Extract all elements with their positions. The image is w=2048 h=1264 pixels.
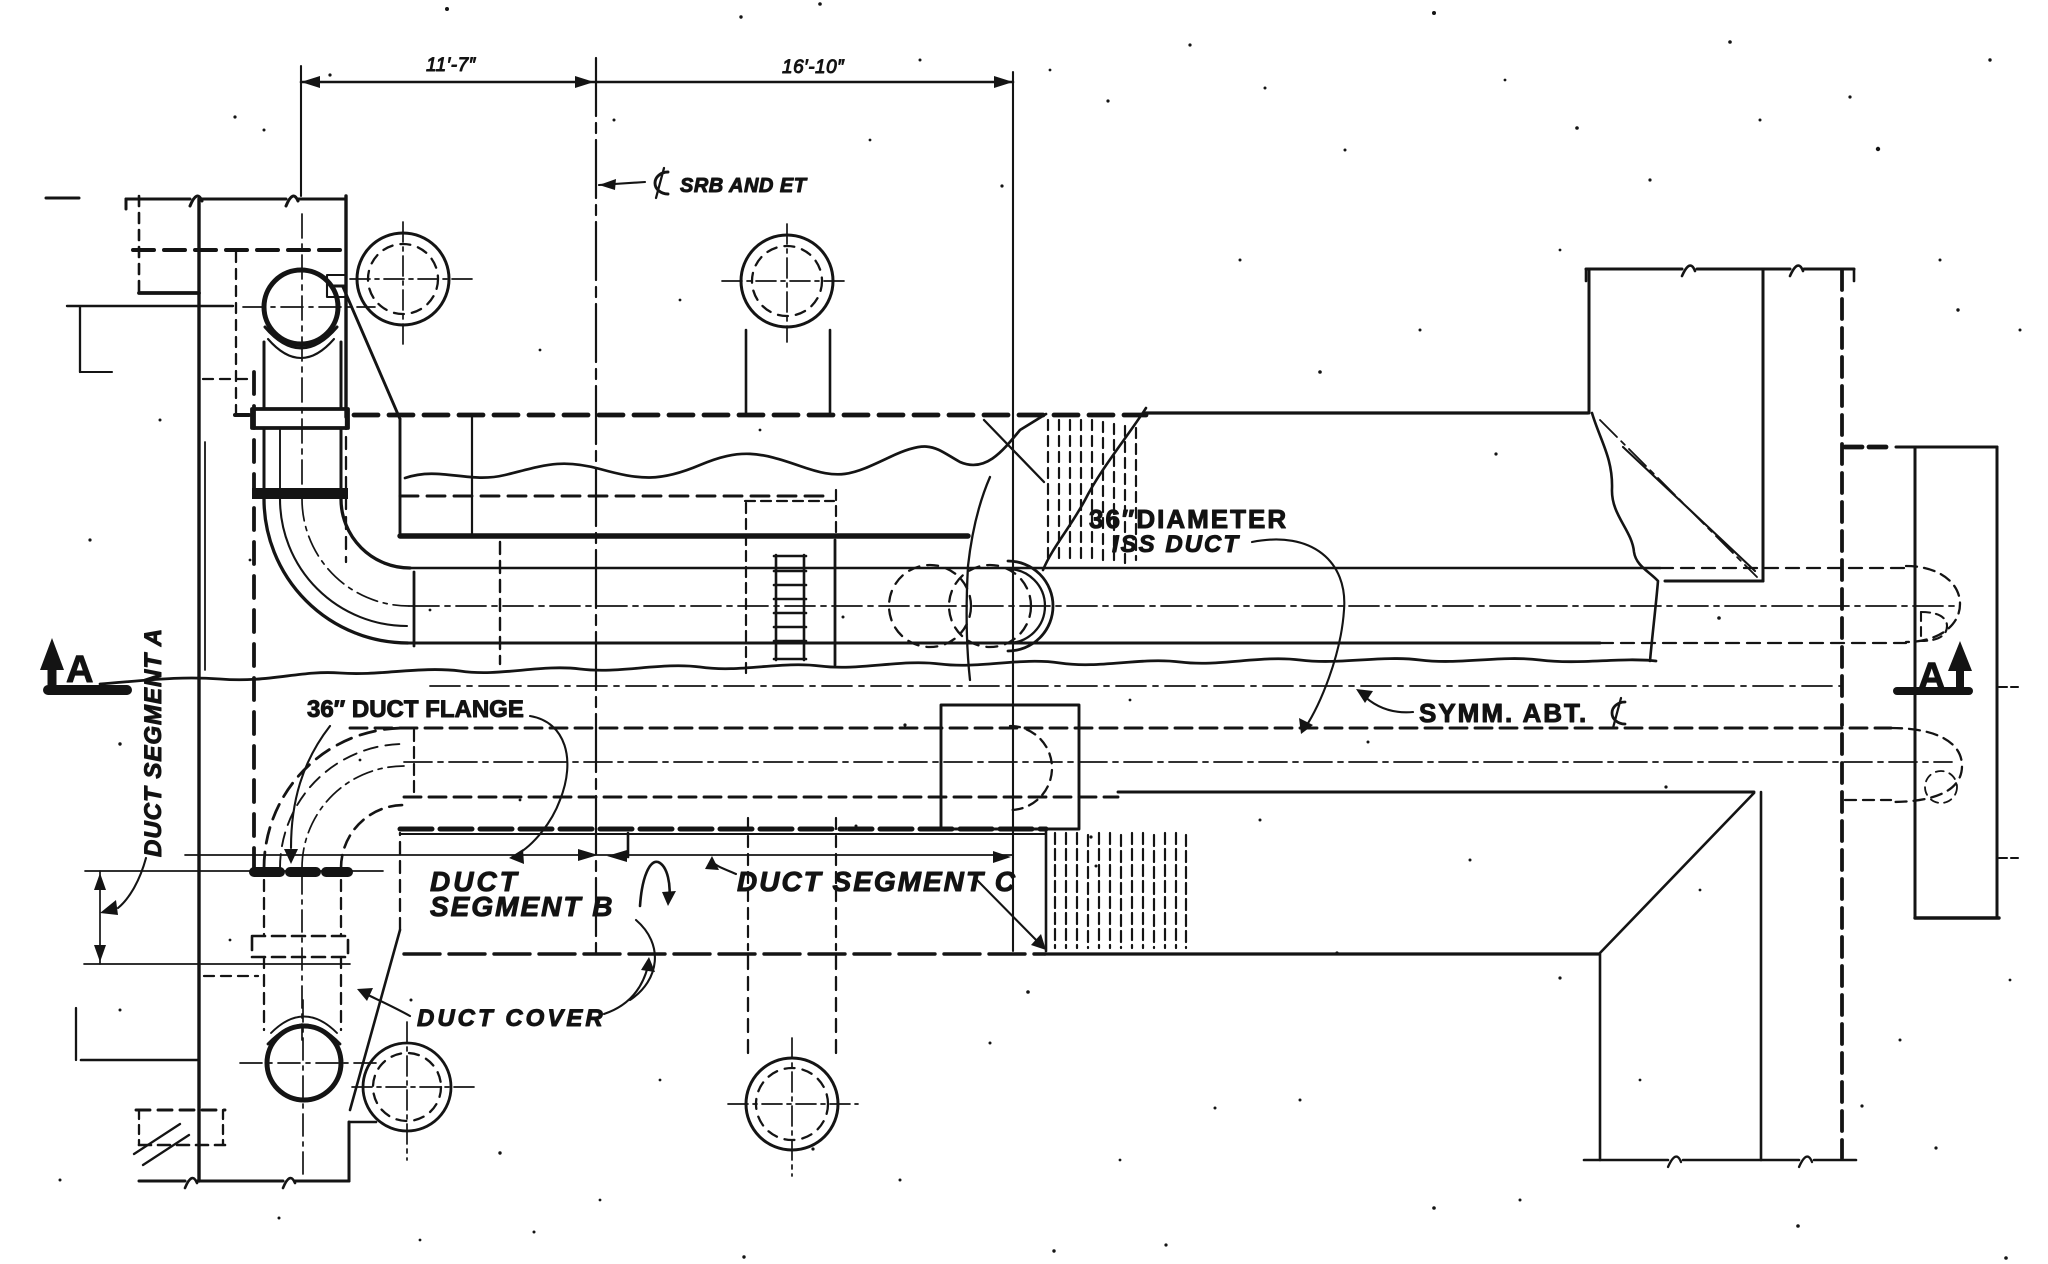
svg-text:36″DIAMETER: 36″DIAMETER [1089, 504, 1288, 534]
svg-text:DUCT SEGMENT A: DUCT SEGMENT A [140, 628, 167, 857]
svg-text:ISS DUCT: ISS DUCT [1112, 531, 1240, 558]
svg-text:A: A [66, 649, 93, 691]
svg-text:SYMM. ABT.: SYMM. ABT. [1419, 698, 1588, 728]
svg-text:DUCT COVER: DUCT COVER [417, 1005, 606, 1032]
svg-text:SEGMENT B: SEGMENT B [430, 891, 614, 922]
svg-text:A: A [1918, 656, 1945, 698]
svg-text:36″ DUCT FLANGE: 36″ DUCT FLANGE [307, 696, 524, 723]
svg-text:SRB AND ET: SRB AND ET [680, 175, 808, 197]
svg-text:DUCT SEGMENT C: DUCT SEGMENT C [737, 866, 1017, 897]
svg-text:16′-10″: 16′-10″ [782, 57, 845, 78]
svg-text:11′-7″: 11′-7″ [426, 55, 477, 76]
